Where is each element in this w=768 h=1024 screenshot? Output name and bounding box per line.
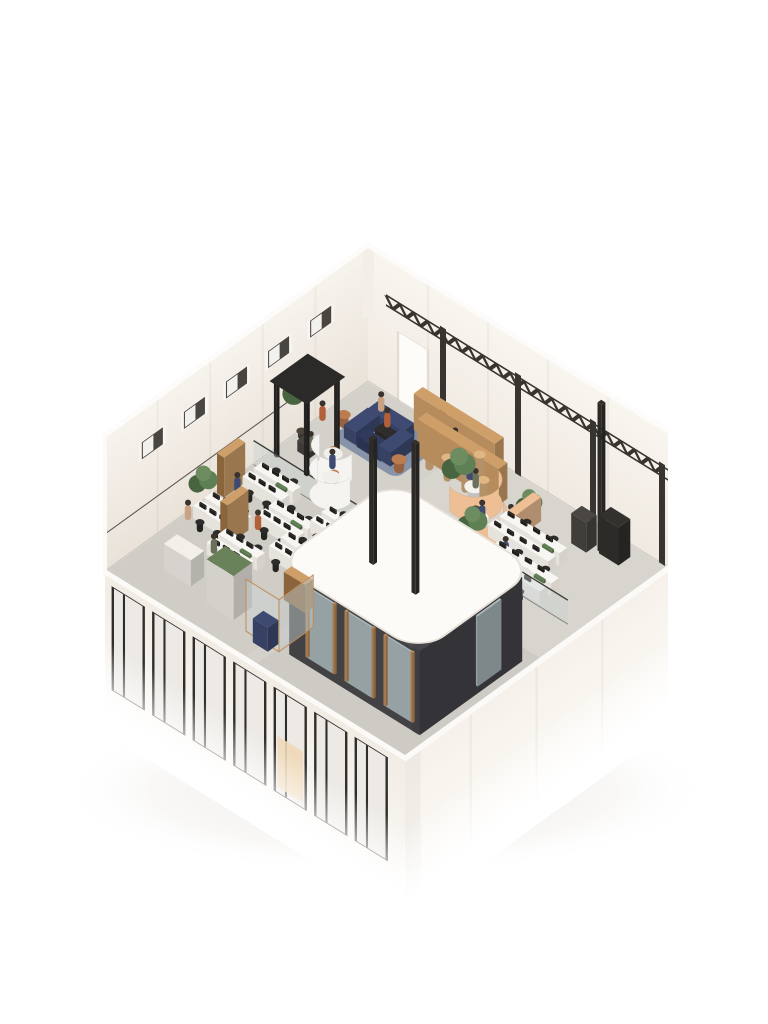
person-at-desk-head	[255, 510, 261, 516]
person-standing-body	[319, 406, 325, 421]
bookshelf-face	[217, 453, 224, 498]
person-at-desk-head	[234, 472, 240, 478]
apex-edge	[362, 246, 374, 320]
pod-glass-door-face	[476, 615, 478, 686]
scene-svg	[0, 0, 768, 1024]
pod-door-frame-face	[411, 652, 413, 723]
person-at-desk-head	[185, 500, 191, 506]
person-on-sofa-head	[384, 407, 390, 413]
person-at-desk-body	[185, 505, 191, 520]
person-at-pod-table-body	[329, 454, 335, 469]
person-at-banquette-head	[479, 500, 485, 506]
truss-post	[659, 461, 665, 566]
person-on-sofa-body	[378, 397, 384, 412]
person-on-sofa-body	[384, 413, 390, 428]
potted-plant-leaves	[464, 506, 480, 522]
steel-column-face	[412, 442, 416, 595]
pod-door-frame-face	[335, 603, 337, 674]
pod-door-frame-face	[413, 652, 415, 723]
truss-post	[590, 419, 596, 524]
canopy-post-face	[337, 379, 340, 455]
canopy-post-face	[334, 379, 337, 455]
pod-door-frame-face	[345, 611, 347, 682]
person-at-banquette-body	[473, 474, 479, 489]
person-standing-head	[320, 400, 326, 406]
pod-door-frame-face	[386, 635, 388, 706]
office-isometric-render	[0, 0, 768, 1024]
person-at-desk-body	[255, 515, 261, 530]
steel-column-face	[373, 437, 377, 565]
steel-column-face	[416, 442, 420, 595]
canopy-post-face	[307, 401, 310, 477]
steel-column-face	[369, 437, 373, 565]
potted-plant-leaves	[450, 448, 468, 466]
canopy-post-face	[304, 401, 307, 477]
pod-door-frame-face	[333, 603, 335, 674]
pod-door-frame-face	[347, 611, 349, 682]
person-at-desk-head	[503, 536, 509, 542]
potted-plant-leaves	[196, 466, 211, 481]
canopy-post-face	[274, 382, 277, 458]
pod-door-frame-face	[384, 635, 386, 706]
pod-door-frame-face	[372, 628, 374, 699]
canopy-post-face	[277, 382, 280, 458]
truss-post	[515, 372, 521, 477]
person-on-sofa-head	[378, 391, 384, 397]
person-at-desk-body	[211, 539, 217, 554]
pod-door-frame-face	[374, 627, 376, 698]
person-at-desk-head	[211, 533, 217, 539]
person-at-pod-table-head	[329, 449, 335, 455]
